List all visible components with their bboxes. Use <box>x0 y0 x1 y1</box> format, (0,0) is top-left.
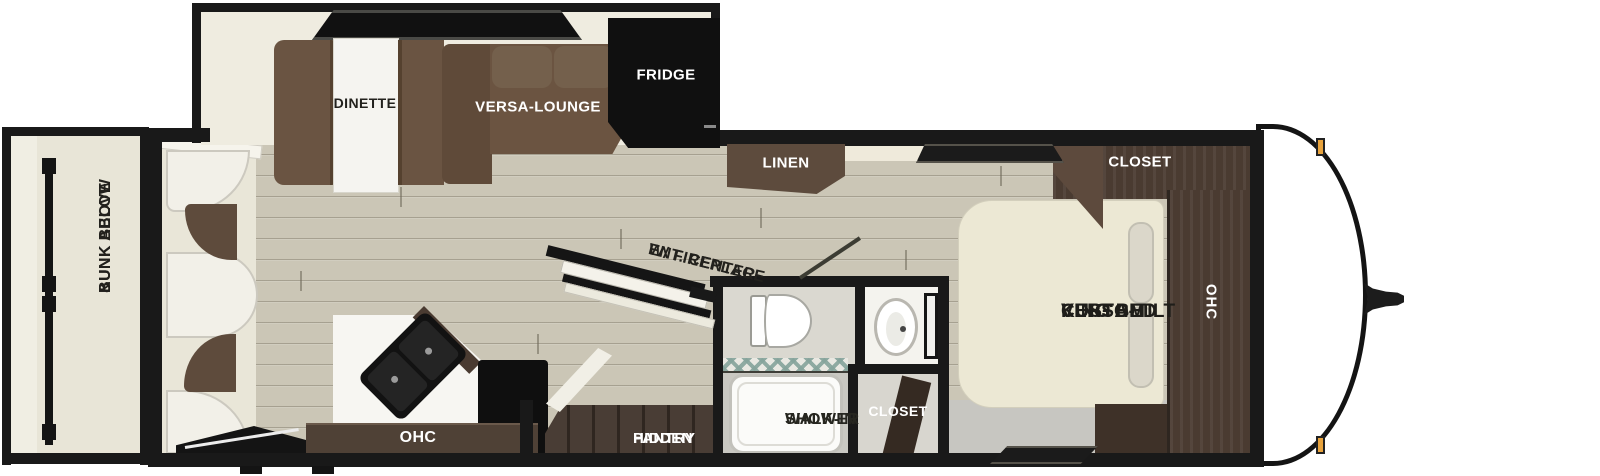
bunk-rail-block <box>42 158 56 174</box>
bunk-wall-face <box>11 136 37 456</box>
dinette-bench-right <box>398 40 444 185</box>
marker-light-bottom <box>1316 436 1325 454</box>
plank-seam <box>620 229 622 249</box>
bath-mirror <box>924 293 938 359</box>
basin-drain <box>900 326 906 332</box>
linen-label: LINEN <box>763 155 810 172</box>
fridge-label: FRIDGE <box>636 67 695 84</box>
bedroom-window-top <box>916 144 1064 163</box>
main-wall-left <box>148 128 162 467</box>
dinette-label: DINETTE <box>334 95 397 111</box>
hidden-pantry-label-line2: PANTRY <box>633 428 695 449</box>
bath-sink-basin <box>874 298 918 356</box>
bedroom-ohc-cabinet <box>1167 190 1253 458</box>
bed-pillow <box>1128 222 1154 304</box>
bedroom-nightstand <box>1095 404 1167 458</box>
slideout-window <box>312 10 582 40</box>
bunk-label-line3: BUNK BELOW <box>96 179 116 293</box>
stabilizer-tick <box>240 466 262 474</box>
stabilizer-tick <box>312 466 334 474</box>
front-cap <box>1256 124 1368 466</box>
plank-seam <box>905 250 907 270</box>
dinette-table <box>333 38 399 193</box>
bedroom-window-bottom <box>990 446 1098 464</box>
bunk-slide-wall-left <box>2 127 11 465</box>
bunk-rail-block <box>42 424 56 440</box>
bunk-slide-wall-top <box>2 127 149 136</box>
bath-closet-label: CLOSET <box>868 403 927 419</box>
kitchen-ohc-label: OHC <box>400 429 437 447</box>
bunk-rail-block <box>42 276 56 292</box>
hitch-coupler <box>1364 283 1404 315</box>
plank-seam <box>760 208 762 228</box>
floorplan-canvas: BUNK ABOVE & BUNK BELOW DINETTE VERSA-LO… <box>0 0 1600 476</box>
main-wall-top-right <box>700 130 1262 146</box>
plank-seam <box>400 187 402 207</box>
sofa-cushion <box>492 46 552 88</box>
marker-light-top <box>1316 138 1325 156</box>
bedroom-ohc-label: OHC <box>1203 284 1220 320</box>
dinette-bench-left <box>274 40 334 185</box>
top-slide-wall-left <box>192 3 201 143</box>
main-wall-right <box>1250 130 1264 467</box>
bath-wall-divider <box>855 287 865 367</box>
walk-in-shower-label-line2: SHOWER <box>785 409 859 431</box>
plank-seam <box>537 334 539 354</box>
closet-wall-top <box>848 364 949 374</box>
fridge-handle <box>704 125 716 128</box>
plank-seam <box>300 271 302 291</box>
shower-glass-door <box>723 358 848 373</box>
sofa-cushion <box>554 46 614 88</box>
rear-seat-arm-middle <box>166 252 258 338</box>
bedroom-closet-label: CLOSET <box>1108 154 1171 171</box>
versa-lounge-label: VERSA-LOUNGE <box>475 99 601 116</box>
bunk-rail-block <box>42 296 56 312</box>
main-wall-bottom <box>148 453 1264 467</box>
king-bed-label-line3: KING BED <box>1061 299 1157 325</box>
plank-seam <box>1000 166 1002 186</box>
bunk-slide-wall-bottom <box>2 453 149 464</box>
